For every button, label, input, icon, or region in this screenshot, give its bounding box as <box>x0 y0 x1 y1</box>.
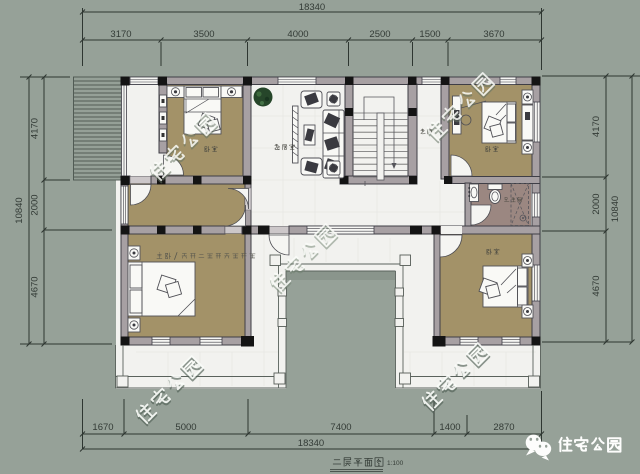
svg-text:10840: 10840 <box>14 197 25 223</box>
svg-text:3670: 3670 <box>483 29 504 40</box>
svg-text:18340: 18340 <box>299 2 325 13</box>
svg-text:18340: 18340 <box>298 438 324 449</box>
svg-text:2000: 2000 <box>30 194 41 215</box>
svg-text:10840: 10840 <box>610 196 621 222</box>
svg-text:5000: 5000 <box>175 422 196 433</box>
svg-text:1400: 1400 <box>439 422 460 433</box>
svg-text:2870: 2870 <box>493 422 514 433</box>
svg-text:4670: 4670 <box>30 276 41 297</box>
svg-text:2500: 2500 <box>369 29 390 40</box>
svg-text:1500: 1500 <box>419 29 440 40</box>
svg-text:3500: 3500 <box>193 29 214 40</box>
svg-text:4170: 4170 <box>30 118 41 139</box>
svg-text:1670: 1670 <box>92 422 113 433</box>
svg-text:7400: 7400 <box>330 422 351 433</box>
svg-text:1:100: 1:100 <box>387 460 404 467</box>
svg-text:4670: 4670 <box>591 275 602 296</box>
svg-text:4170: 4170 <box>591 116 602 137</box>
svg-text:2000: 2000 <box>591 193 602 214</box>
svg-text:4000: 4000 <box>287 29 308 40</box>
svg-text:3170: 3170 <box>110 29 131 40</box>
